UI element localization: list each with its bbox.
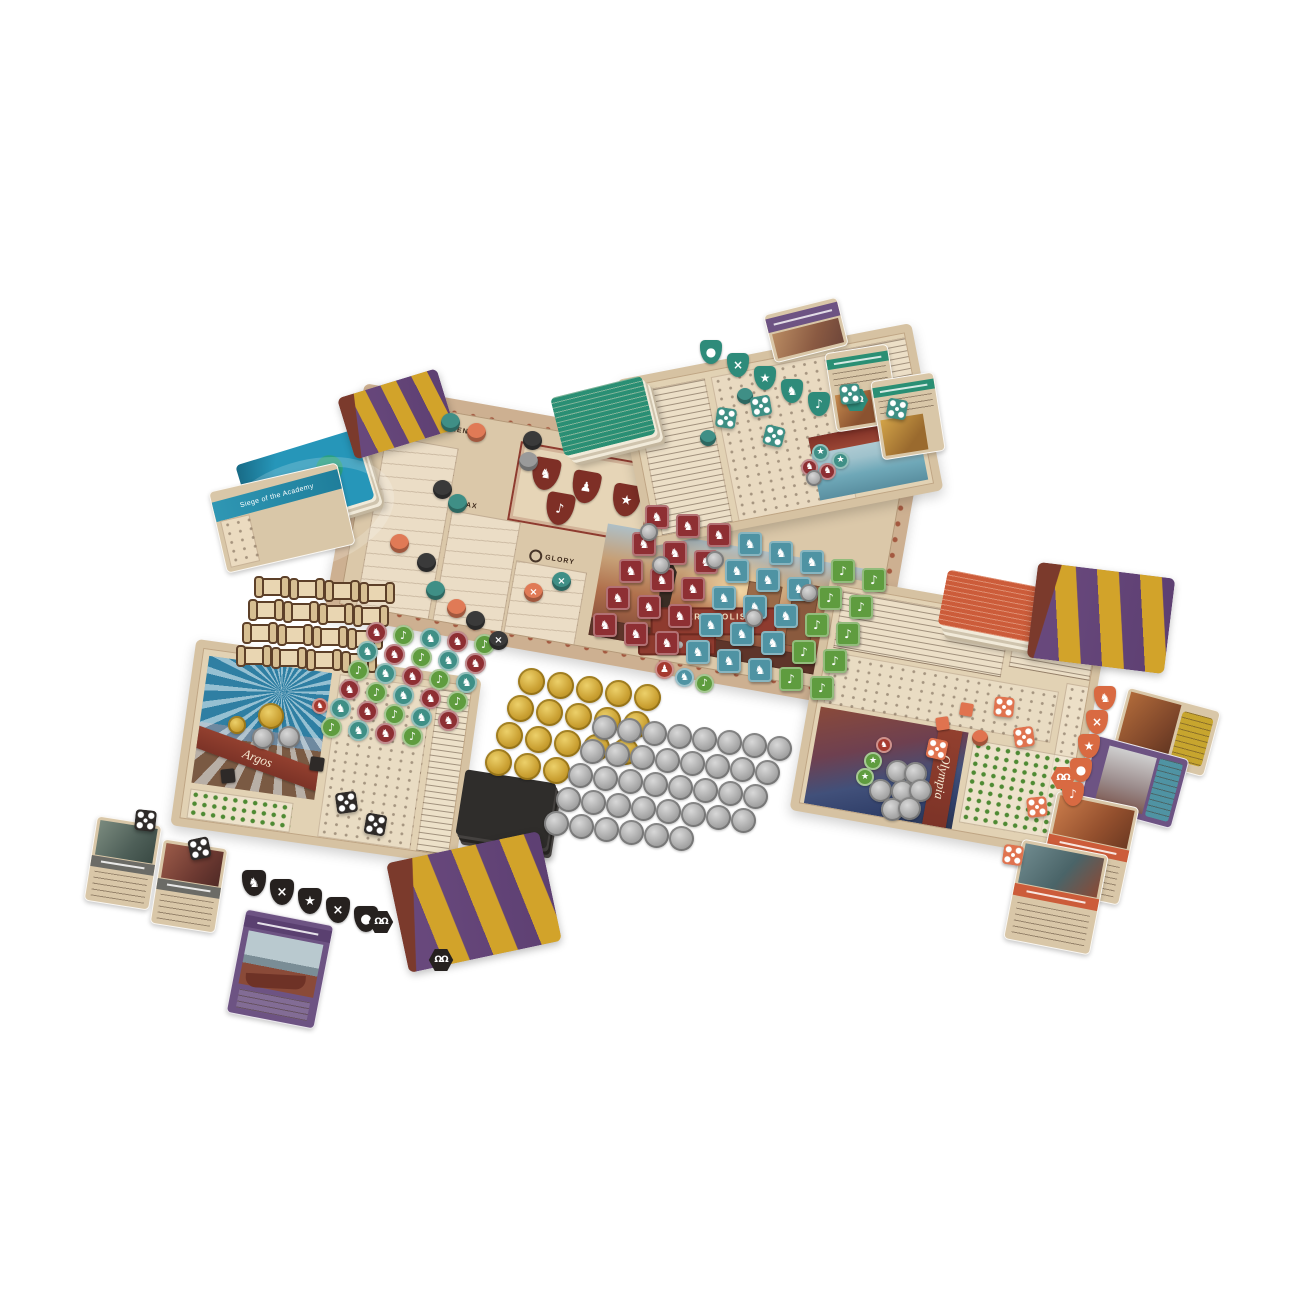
scroll-tokens-item <box>328 582 356 600</box>
silver-coins-item <box>605 742 630 767</box>
achievement-tiles-item: ♞ <box>769 541 793 565</box>
achievement-tiles-item: ♪ <box>831 559 855 583</box>
silver-coins-item <box>706 805 731 830</box>
main-board-pawns-item <box>433 480 452 499</box>
gold-coins-item <box>536 699 563 726</box>
drape-card-right <box>1027 562 1176 674</box>
black-cubes-item <box>309 756 325 772</box>
gold-coins-item <box>634 684 661 711</box>
silver-coins-item <box>668 775 693 800</box>
black-cubes-item <box>220 768 235 783</box>
silver-coins-item <box>669 826 694 851</box>
band-text-line <box>834 356 881 365</box>
argos-silver-coins-item <box>278 726 300 748</box>
silver-coins-item <box>630 745 655 770</box>
teal-dice-item <box>839 383 861 405</box>
teal-dice-item <box>885 397 908 420</box>
teal-dice-item <box>749 394 772 417</box>
persepolis-plate-discs-item: ♟ <box>655 660 674 679</box>
orange-dice-item <box>925 737 949 761</box>
achievement-tiles-item: ♪ <box>836 622 860 646</box>
main-board-pawns-item <box>519 452 538 471</box>
knowledge-tokens-item: ♞ <box>366 622 387 643</box>
silver-coins-item <box>644 823 669 848</box>
gold-coins-item <box>514 753 541 780</box>
main-board-pawns-item: × <box>524 583 543 602</box>
black-shield-tokens-item: × <box>326 897 350 923</box>
silver-coins-item <box>767 736 792 761</box>
knowledge-tokens-item: ♞ <box>375 663 396 684</box>
achievement-tiles-item: ♪ <box>810 676 834 700</box>
glory-icon <box>528 548 543 563</box>
achievement-tiles-item: ♞ <box>717 649 741 673</box>
glory-label-text: GLORY <box>544 554 575 566</box>
black-shield-tokens-item: ♞ <box>242 870 266 896</box>
silver-coins-item <box>580 739 605 764</box>
achievement-tiles-item: ♞ <box>668 604 692 628</box>
main-board-pawns-item: × <box>552 572 571 591</box>
scroll-tokens-item <box>363 584 391 602</box>
gold-coins-item <box>485 749 512 776</box>
knowledge-tokens-item: ♞ <box>420 628 441 649</box>
achievement-tiles-item: ♞ <box>761 631 785 655</box>
achievement-tiles-item: ♞ <box>655 631 679 655</box>
argos-name: Argos <box>240 746 274 771</box>
knowledge-tokens-item: ♪ <box>402 726 423 747</box>
silver-coins-item <box>718 781 743 806</box>
silver-coins-item <box>655 748 680 773</box>
silver-coins-item <box>731 808 756 833</box>
black-shield-tokens-item: ★ <box>298 888 322 914</box>
orange-dice-item <box>1026 796 1048 818</box>
silver-coins-item <box>680 751 705 776</box>
achievement-tiles-item: ♞ <box>738 532 762 556</box>
orange-card-text <box>1011 902 1090 948</box>
argos-badge-item: ♞ <box>312 698 328 714</box>
achievement-tiles-item: ♪ <box>779 667 803 691</box>
main-board-pawns-item: × <box>489 631 508 650</box>
persepolis-plate-discs-item: ♞ <box>675 668 694 687</box>
scroll-tokens-item <box>275 649 303 667</box>
achievement-tiles-item: ♞ <box>774 604 798 628</box>
silver-coins-item <box>643 772 668 797</box>
knowledge-tokens-item: ♞ <box>384 644 405 665</box>
main-board-pawns-item <box>448 494 467 513</box>
knowledge-tokens-item: ♞ <box>402 666 423 687</box>
board-silver-coins-item <box>745 609 763 627</box>
argos-silver-coins-item <box>252 727 274 749</box>
scroll-tokens-item <box>246 624 274 642</box>
scroll-tokens-item <box>252 601 280 619</box>
silver-coins-item <box>667 724 692 749</box>
orange-cubes-item <box>959 702 974 717</box>
knowledge-tokens-item: ♞ <box>447 631 468 652</box>
knowledge-tokens-item: ♞ <box>339 679 360 700</box>
silver-coins-item <box>681 802 706 827</box>
achievement-tiles-item: ♪ <box>823 649 847 673</box>
knowledge-tokens-item: ♞ <box>375 723 396 744</box>
orange-dice-item <box>993 696 1015 718</box>
gold-coins-item <box>547 672 574 699</box>
achievement-tiles-item: ♞ <box>676 514 700 538</box>
gold-coins-item <box>507 695 534 722</box>
gold-coins-item <box>554 730 581 757</box>
knowledge-tokens-item: ♞ <box>456 672 477 693</box>
silver-coins-item <box>606 793 631 818</box>
olympia-name: Olympia <box>931 753 955 800</box>
black-dice-item <box>187 836 212 861</box>
silver-coins-item <box>631 796 656 821</box>
argos-gold-coin-item <box>258 703 284 729</box>
achievement-tiles-item: ♞ <box>712 586 736 610</box>
green-card-art <box>880 414 928 456</box>
achievement-tiles-item: ♞ <box>624 622 648 646</box>
silver-coins-item <box>717 730 742 755</box>
orange-pawn-item <box>972 730 988 746</box>
product-photo-scene: CITIZENS TAX GLORY × TROOPS ♞ ♟ ★ ♪ × <box>0 0 1300 1300</box>
silver-coins-item <box>693 778 718 803</box>
knowledge-tokens-item: ♪ <box>393 625 414 646</box>
achievement-tiles-item: ♞ <box>681 577 705 601</box>
black-dice-item <box>335 791 359 815</box>
gold-coins-item <box>525 726 552 753</box>
silver-coins-item <box>692 727 717 752</box>
panel-shield-lyre: ♪ <box>543 491 576 527</box>
top-board-pawns-item <box>700 430 716 446</box>
silver-coins-item <box>705 754 730 779</box>
orange-shield-tokens-item: × <box>1086 710 1108 734</box>
scroll-tokens-item <box>287 603 315 621</box>
main-board-pawns-item <box>467 423 486 442</box>
achievement-tiles-item: ♞ <box>707 523 731 547</box>
black-dice-item <box>363 812 387 836</box>
ship-hull <box>245 973 306 990</box>
knowledge-tokens-item: ♪ <box>429 669 450 690</box>
main-board-pawns-item <box>417 553 436 572</box>
knowledge-tokens-item: ♪ <box>348 660 369 681</box>
argos-gold-coin-small-item <box>228 716 246 734</box>
main-board-pawns-item <box>466 611 485 630</box>
event-card-cost-column <box>220 514 260 568</box>
main-board-pawns-item <box>426 581 445 600</box>
knowledge-tokens-item: ♞ <box>357 641 378 662</box>
gold-coins-item <box>496 722 523 749</box>
silver-coins-item <box>642 721 667 746</box>
gold-coins-item <box>605 680 632 707</box>
achievement-tiles-item: ♞ <box>748 658 772 682</box>
scroll-tokens-item <box>316 628 344 646</box>
gold-coins-item <box>543 757 570 784</box>
citizen-card-text <box>157 893 214 926</box>
glory-track <box>503 560 587 645</box>
band-text-line <box>166 883 211 892</box>
board-silver-coins-item <box>706 551 724 569</box>
knowledge-tokens-item: ♪ <box>321 717 342 738</box>
gold-coins-item <box>576 676 603 703</box>
orange-dice-item <box>1013 726 1036 749</box>
top-board-discs-item: ★ <box>812 444 829 461</box>
gold-coins-item <box>518 668 545 695</box>
band-text-line <box>880 384 927 393</box>
achievement-tiles-item: ♞ <box>725 559 749 583</box>
knowledge-tokens-item: ♪ <box>411 647 432 668</box>
silver-coins-item <box>742 733 767 758</box>
orange-dice-item <box>1002 844 1025 867</box>
board-silver-coins-item <box>640 523 658 541</box>
knowledge-tokens-item: ♪ <box>447 691 468 712</box>
achievement-tiles-item: ♞ <box>637 595 661 619</box>
citizen-card-text <box>91 870 148 903</box>
achievement-tiles-item: ♞ <box>699 613 723 637</box>
achievement-tiles-item: ♞ <box>606 586 630 610</box>
persepolis-plate-discs-item: ♪ <box>695 674 714 693</box>
achievement-tiles-item: ♞ <box>593 613 617 637</box>
top-board-coin-item <box>806 470 822 486</box>
scroll-tokens-item <box>310 651 338 669</box>
knowledge-tokens-item: ♞ <box>420 688 441 709</box>
scroll-tokens-item <box>240 647 268 665</box>
main-board-pawns-item <box>390 534 409 553</box>
main-board-pawns-item <box>447 599 466 618</box>
silver-coins-item <box>743 784 768 809</box>
silver-coins-item <box>618 769 643 794</box>
black-shield-tokens-item: × <box>270 879 294 905</box>
main-board-pawns-item <box>523 431 542 450</box>
orange-cubes-item <box>935 716 950 731</box>
silver-coins-item <box>581 790 606 815</box>
silver-coins-item <box>568 763 593 788</box>
silver-coins-item <box>594 817 619 842</box>
scroll-tokens-item <box>281 626 309 644</box>
achievement-tiles-item: ♪ <box>849 595 873 619</box>
knowledge-tokens-item: ♞ <box>411 707 432 728</box>
achievement-tiles-item: ♪ <box>818 586 842 610</box>
scroll-tokens-item <box>293 580 321 598</box>
silver-coins-item <box>593 766 618 791</box>
board-silver-coins-item <box>652 556 670 574</box>
knowledge-tokens-item: ♞ <box>357 701 378 722</box>
achievement-tiles-item: ♪ <box>862 568 886 592</box>
achievement-tiles-item: ♪ <box>792 640 816 664</box>
olympia-discs-item: ★ <box>856 768 874 786</box>
silver-coins-item <box>617 718 642 743</box>
orange-shield-tokens-item: ♞ <box>1094 686 1116 710</box>
achievement-tiles-item: ♪ <box>805 613 829 637</box>
scroll-tokens-item <box>322 605 350 623</box>
knowledge-tokens-item: ♞ <box>348 720 369 741</box>
scroll-tokens-item <box>258 578 286 596</box>
purple-ship-card <box>226 908 335 1029</box>
silver-coins-item <box>755 760 780 785</box>
achievement-tiles-item: ♞ <box>800 550 824 574</box>
olympia-coin-pile-item <box>898 797 921 820</box>
knowledge-tokens-item: ♞ <box>465 653 486 674</box>
green-banner-card-2 <box>870 371 946 460</box>
silver-coins-item <box>556 787 581 812</box>
silver-coins-item <box>619 820 644 845</box>
knowledge-tokens-item: ♪ <box>384 704 405 725</box>
teal-dice-item <box>715 407 738 430</box>
knowledge-tokens-item: ♪ <box>366 682 387 703</box>
knowledge-tokens-item: ♞ <box>438 650 459 671</box>
black-dice-item <box>134 809 157 832</box>
achievement-tiles-item: ♞ <box>686 640 710 664</box>
achievement-tiles-item: ♞ <box>619 559 643 583</box>
silver-coins-item <box>656 799 681 824</box>
knowledge-tokens-item: ♞ <box>393 685 414 706</box>
silver-coins-item <box>730 757 755 782</box>
argos-progress-panel <box>186 789 293 833</box>
achievement-tiles-item: ♞ <box>756 568 780 592</box>
silver-coins-item <box>569 814 594 839</box>
band-text-line <box>100 860 145 869</box>
silver-coins-item <box>592 715 617 740</box>
gold-coins-item <box>565 703 592 730</box>
board-silver-coins-item <box>800 584 818 602</box>
main-board-pawns-item <box>441 413 460 432</box>
olympia-badge-item: ♞ <box>876 737 892 753</box>
knowledge-tokens-item: ♞ <box>438 710 459 731</box>
knowledge-tokens-item: ♞ <box>330 698 351 719</box>
silver-coins-item <box>544 811 569 836</box>
